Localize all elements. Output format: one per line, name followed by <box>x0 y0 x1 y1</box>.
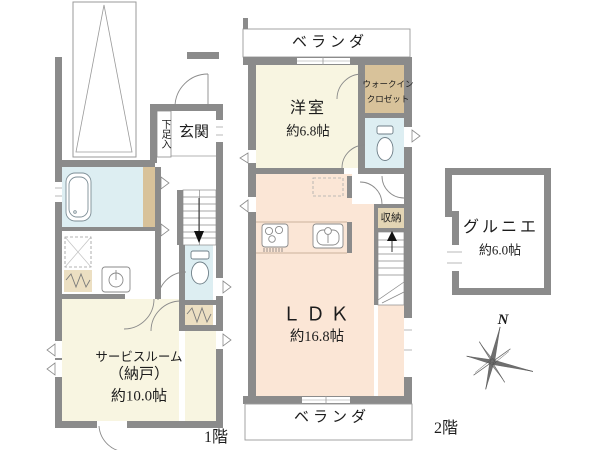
wic-label-line2: クロゼット <box>367 95 410 104</box>
compass-icon <box>460 321 541 399</box>
closet1-floor <box>185 305 213 325</box>
veranda-top-label: ベランダ <box>292 36 368 51</box>
service-room-label2: （納戸） <box>109 368 169 383</box>
service-room-label: サービスルーム <box>95 351 182 364</box>
stairs-1f <box>183 190 216 245</box>
service-room-floor2 <box>185 331 216 421</box>
ldk-floor-c <box>378 305 404 396</box>
sink-icon <box>102 267 130 292</box>
grenier-window <box>447 245 462 271</box>
ldk-floor-b <box>352 204 374 396</box>
wall-stub-top <box>243 18 248 29</box>
service-room-exit-gap <box>97 421 127 428</box>
entrance-door-icon <box>175 74 208 107</box>
toilet2-icon <box>377 126 393 161</box>
grenier-label: グルニエ <box>463 220 539 236</box>
kitchen-sink-icon <box>313 224 343 248</box>
floor1-label: 1階 <box>204 430 228 446</box>
service-room-exit-door-icon <box>99 426 127 450</box>
storage2-label: 収納 <box>381 214 402 225</box>
stairs-2f <box>378 231 404 305</box>
bath-shelf <box>143 167 155 227</box>
western-room-label: 洋室 <box>290 101 326 117</box>
ldk-floor-a <box>256 174 352 396</box>
veranda-bottom-label: ベランダ <box>294 411 370 426</box>
toilet1-icon <box>191 251 209 284</box>
grenier-area: 約6.0帖 <box>479 244 521 257</box>
shoe-cabinet-label: 下足入 <box>159 119 169 149</box>
ldk-area: 約16.8帖 <box>290 330 344 345</box>
parking-space <box>73 2 136 157</box>
western-room-area: 約6.8帖 <box>286 124 330 138</box>
ldk-label: ＬＤＫ <box>282 306 354 325</box>
entrance-label: 玄関 <box>179 126 209 141</box>
wic-label-line1: ウォークイン <box>362 80 413 89</box>
service-room-area: 約10.0帖 <box>111 390 167 405</box>
bathtub-icon <box>66 173 91 221</box>
floor2-label: 2階 <box>434 421 458 437</box>
floor-plan: N 玄関 下足入 サービスルーム （納戸） 約10.0帖 1階 ベランダ 洋室 … <box>0 0 600 450</box>
wic-floor <box>365 65 404 113</box>
compass-north-label: N <box>497 312 510 328</box>
hall2-floor <box>352 174 404 204</box>
